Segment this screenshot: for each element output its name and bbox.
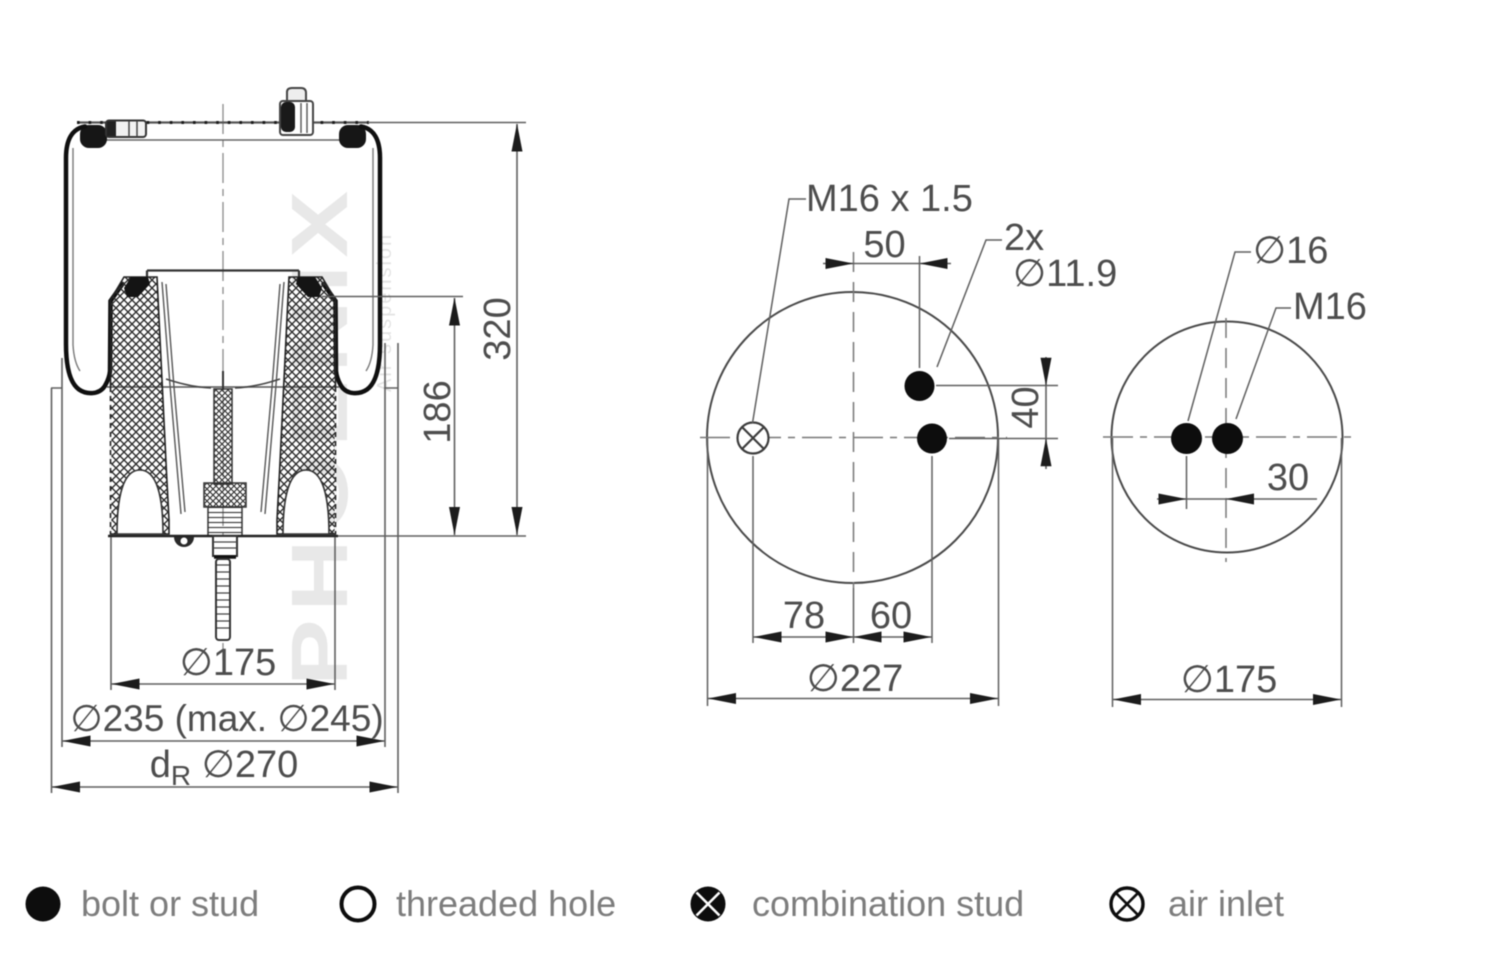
svg-text:∅235 (max. ∅245): ∅235 (max. ∅245): [70, 698, 383, 739]
svg-text:∅175: ∅175: [180, 642, 277, 684]
svg-text:bolt or stud: bolt or stud: [81, 883, 259, 924]
svg-text:320: 320: [477, 297, 519, 360]
svg-text:M16 x 1.5: M16 x 1.5: [806, 178, 973, 220]
svg-text:air inlet: air inlet: [1168, 883, 1284, 924]
svg-text:60: 60: [870, 595, 912, 637]
svg-text:∅175: ∅175: [1181, 659, 1278, 701]
svg-text:78: 78: [783, 595, 825, 637]
svg-text:40: 40: [1005, 386, 1047, 428]
svg-text:combination stud: combination stud: [752, 883, 1024, 924]
svg-text:∅16: ∅16: [1253, 230, 1328, 272]
svg-text:∅227: ∅227: [807, 658, 904, 700]
svg-text:30: 30: [1267, 457, 1309, 499]
svg-text:186: 186: [417, 380, 459, 443]
svg-text:50: 50: [863, 224, 905, 266]
svg-text:threaded hole: threaded hole: [396, 883, 616, 924]
svg-text:∅11.9: ∅11.9: [1013, 253, 1117, 295]
svg-text:M16: M16: [1293, 286, 1367, 328]
